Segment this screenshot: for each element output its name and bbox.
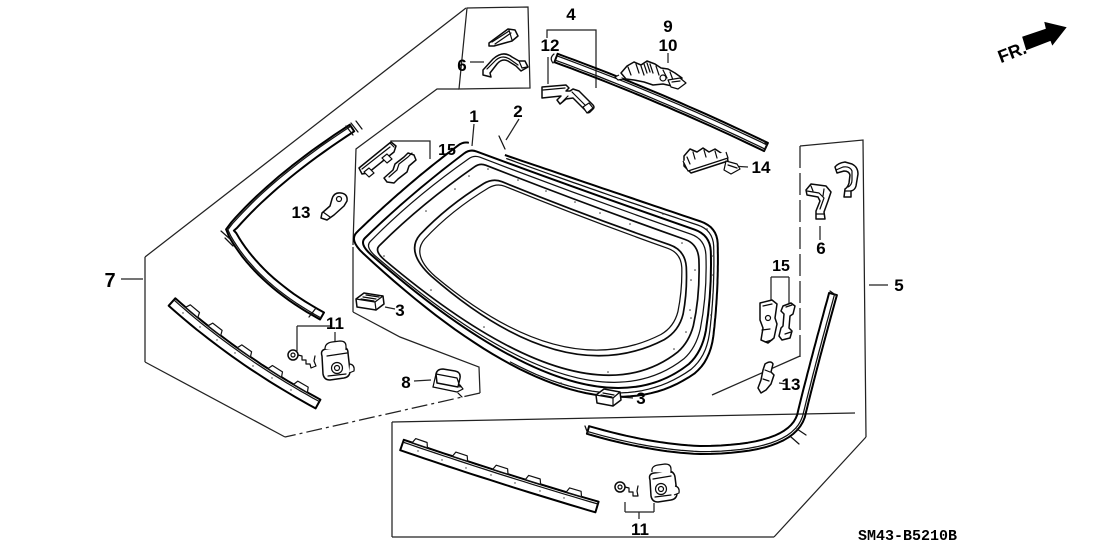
svg-text:2: 2 — [513, 102, 522, 121]
svg-text:3: 3 — [395, 301, 404, 320]
svg-text:3: 3 — [636, 389, 645, 408]
svg-text:14: 14 — [752, 158, 771, 177]
svg-text:10: 10 — [659, 36, 678, 55]
svg-text:13: 13 — [292, 203, 311, 222]
svg-text:SM43-B5210B: SM43-B5210B — [858, 528, 957, 545]
svg-text:8: 8 — [401, 373, 410, 392]
svg-text:12: 12 — [541, 36, 560, 55]
svg-text:4: 4 — [566, 5, 576, 24]
svg-text:7: 7 — [104, 270, 115, 292]
svg-text:11: 11 — [631, 520, 649, 539]
svg-text:6: 6 — [816, 239, 825, 258]
svg-text:13: 13 — [782, 375, 801, 394]
svg-text:15: 15 — [438, 142, 456, 159]
svg-text:5: 5 — [894, 276, 903, 295]
svg-text:11: 11 — [326, 314, 344, 333]
svg-text:6: 6 — [457, 56, 466, 75]
svg-text:1: 1 — [469, 107, 478, 126]
svg-text:15: 15 — [772, 258, 790, 275]
svg-text:9: 9 — [663, 17, 672, 36]
